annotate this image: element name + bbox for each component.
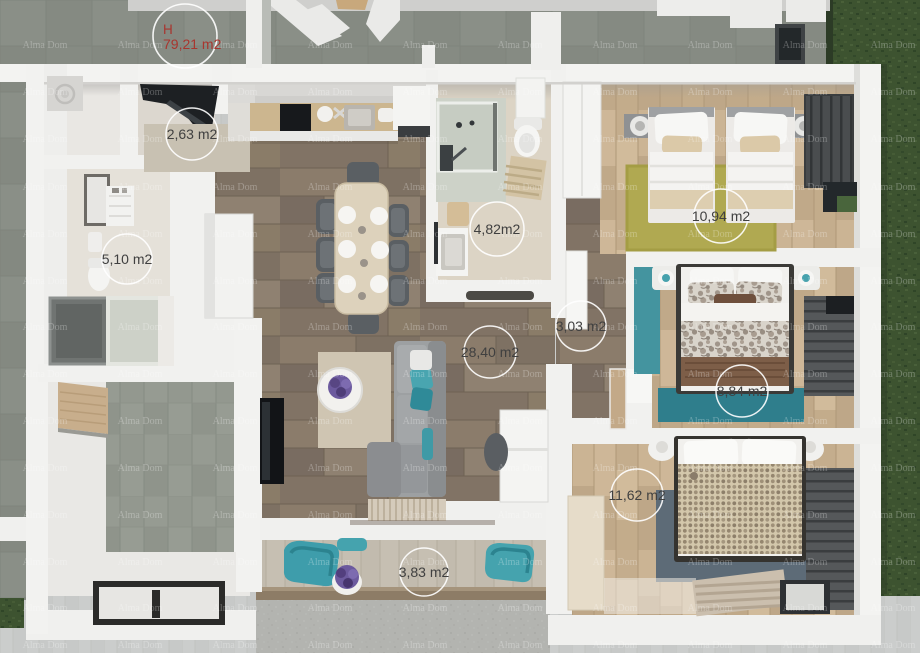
svg-text:8,84 m2: 8,84 m2: [717, 383, 768, 399]
svg-text:79,21 m2: 79,21 m2: [163, 36, 222, 52]
svg-text:Alma Dom: Alma Dom: [498, 40, 543, 51]
svg-text:Alma Dom: Alma Dom: [688, 40, 733, 51]
svg-text:Alma Dom: Alma Dom: [308, 40, 353, 51]
svg-text:2,63 m2: 2,63 m2: [167, 126, 218, 142]
svg-text:Alma Dom: Alma Dom: [871, 40, 916, 51]
svg-text:10,94 m2: 10,94 m2: [692, 208, 751, 224]
svg-text:4,82m2: 4,82m2: [474, 221, 521, 237]
svg-text:3,83 m2: 3,83 m2: [399, 564, 450, 580]
svg-text:5,10 m2: 5,10 m2: [102, 251, 153, 267]
svg-text:11,62 m2: 11,62 m2: [608, 487, 666, 503]
svg-text:28,40 m2: 28,40 m2: [461, 344, 520, 360]
svg-text:Alma Dom: Alma Dom: [783, 40, 828, 51]
svg-text:Alma Dom: Alma Dom: [403, 40, 448, 51]
svg-text:H: H: [163, 22, 173, 37]
svg-text:Alma Dom: Alma Dom: [593, 40, 638, 51]
svg-text:Alma Dom: Alma Dom: [23, 40, 68, 51]
svg-text:3,03 m2: 3,03 m2: [556, 318, 607, 334]
